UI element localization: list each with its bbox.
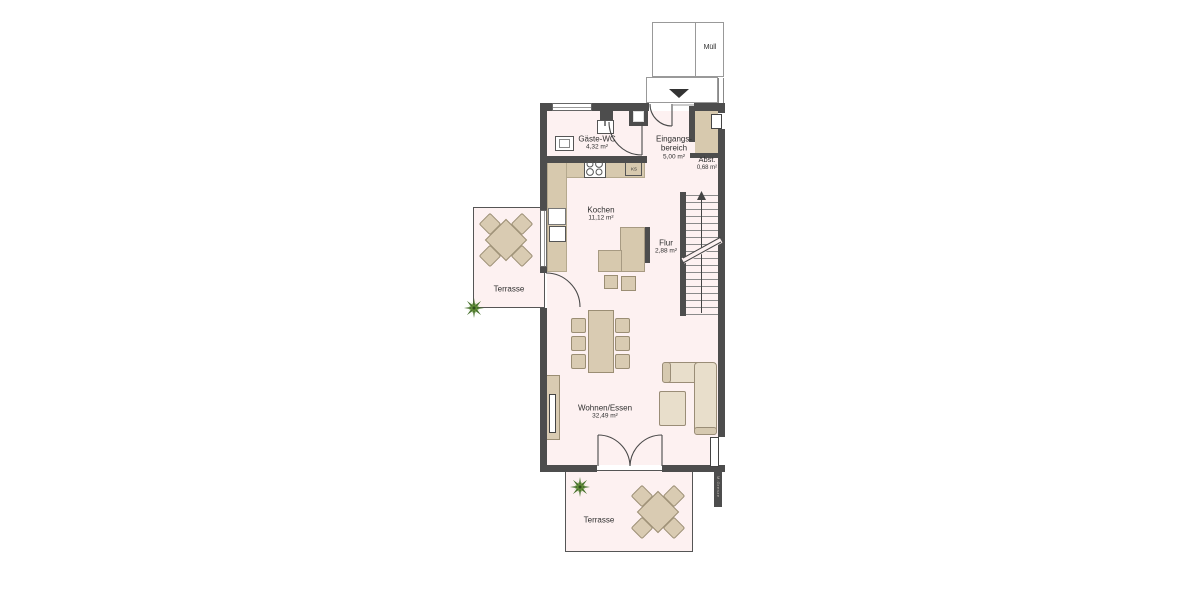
room-label-kitchen: Kochen11,12 m² <box>587 205 614 222</box>
duct-opening <box>633 111 644 122</box>
room-label-wc: Gäste-WC4,32 m² <box>578 134 615 151</box>
floorplan: Müll KS <box>0 0 1200 600</box>
sofa-armrest <box>694 427 717 435</box>
ottoman <box>659 391 686 426</box>
wall-segment <box>680 192 686 316</box>
fence-lines <box>718 78 724 103</box>
room-label-hall: Flur2,88 m² <box>655 238 677 255</box>
wall-segment <box>540 267 547 273</box>
sink-basin <box>549 226 566 242</box>
stool <box>604 275 618 289</box>
trash-label: Müll <box>704 44 717 52</box>
window <box>711 114 722 129</box>
room-label-living: Wohnen/Essen32,49 m² <box>578 403 632 420</box>
wall-segment <box>540 308 547 472</box>
room-label-storage: Abst.0,68 m² <box>697 156 717 172</box>
staircase <box>686 195 718 316</box>
window <box>552 103 592 111</box>
sofa-armrest <box>662 362 671 383</box>
kitchen-island-b <box>598 250 622 272</box>
chair <box>615 336 630 351</box>
chair <box>615 318 630 333</box>
stool <box>621 276 636 291</box>
chair <box>615 354 630 369</box>
window <box>710 437 719 467</box>
dining-table <box>588 310 614 373</box>
fridge-label: KS <box>631 166 637 171</box>
window <box>540 210 547 267</box>
room-label-terrace-left: Terrasse <box>494 284 525 293</box>
chair <box>571 318 586 333</box>
washbasin-bowl <box>559 139 570 148</box>
carport-box <box>652 22 696 77</box>
room-label-entrance: Eingangs- bereich 5,00 m² <box>656 135 692 162</box>
island-edge <box>645 227 650 263</box>
wall-segment <box>718 103 725 113</box>
sofa-right <box>694 362 717 435</box>
toilet <box>597 120 614 134</box>
boundary-watermark: M.Grenze <box>716 476 721 498</box>
kitchen-island-a <box>620 227 645 272</box>
wall-segment <box>540 156 647 163</box>
wall-segment <box>718 129 725 437</box>
tv <box>549 394 556 433</box>
room-label-terrace-bottom: Terrasse <box>584 515 615 524</box>
chair <box>571 354 586 369</box>
wall-segment <box>540 465 597 472</box>
chair <box>571 336 586 351</box>
sink-drainer <box>548 208 566 225</box>
entrance-walkway <box>646 77 718 103</box>
